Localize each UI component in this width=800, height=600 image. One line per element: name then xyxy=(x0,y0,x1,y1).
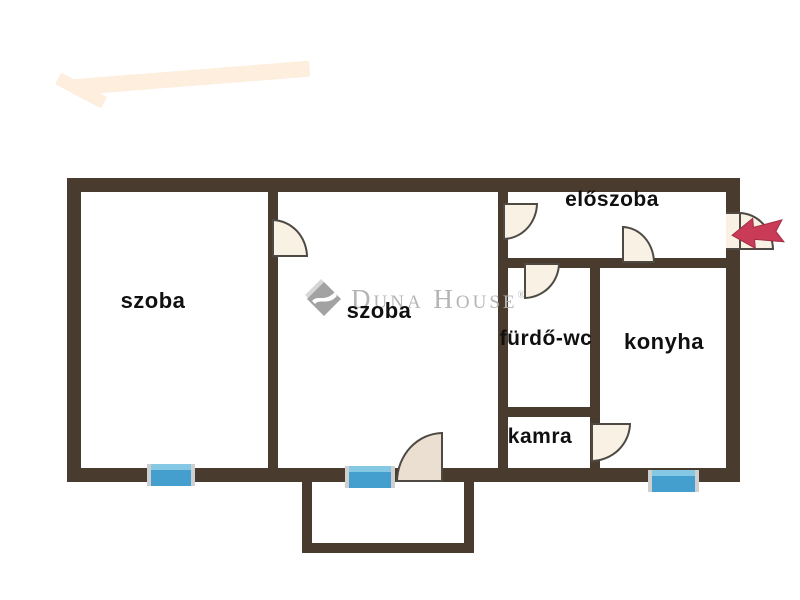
window-szoba1 xyxy=(147,464,195,486)
door-balcony xyxy=(396,432,443,482)
wall-balcony-bottom xyxy=(302,543,474,553)
watermark-swoosh xyxy=(72,61,311,96)
floorplan-canvas: Duna House® szoba szoba előszoba fürdő-w… xyxy=(0,0,800,600)
window-szoba2 xyxy=(345,466,395,488)
duna-house-logo-icon xyxy=(303,277,345,319)
window-konyha xyxy=(648,470,699,492)
door-kamra-konyha xyxy=(591,423,631,462)
room-label-szoba-1: szoba xyxy=(121,288,186,314)
door-furdo-wc xyxy=(524,263,560,299)
room-label-furdo-wc: fürdő-wc xyxy=(500,327,593,351)
room-label-konyha: konyha xyxy=(624,329,704,355)
room-label-eloszoba: előszoba xyxy=(565,188,659,212)
duna-house-watermark: Duna House® xyxy=(303,276,525,319)
door-szoba1-szoba2 xyxy=(272,219,308,257)
door-szoba2-eloszoba xyxy=(503,203,538,240)
room-label-kamra: kamra xyxy=(508,425,572,449)
entrance-arrow-icon xyxy=(729,212,786,255)
wall-furdo-kamra xyxy=(498,407,600,417)
wall-exterior-left xyxy=(67,178,81,482)
room-label-szoba-2: szoba xyxy=(347,298,412,324)
door-eloszoba-konyha xyxy=(622,226,655,263)
